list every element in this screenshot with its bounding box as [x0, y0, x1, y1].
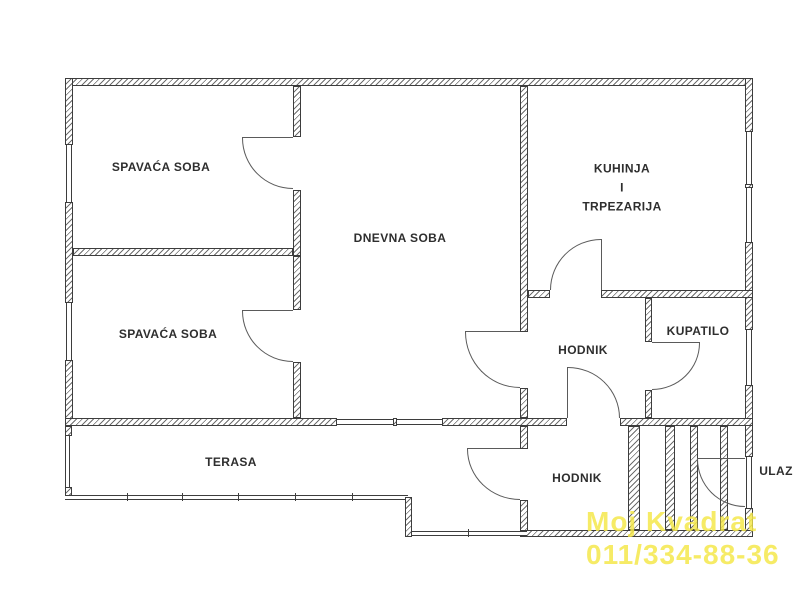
wall-kitchen-bottom: [528, 290, 550, 298]
room-label-entrance: ULAZ: [759, 464, 793, 478]
wall-left: [65, 78, 73, 145]
window-living-room: [337, 419, 442, 425]
railing-tick: [295, 493, 296, 501]
door-arc-hall: [568, 367, 620, 418]
window-bedroom2: [66, 303, 72, 360]
room-label-living-room: DNEVNA SOBA: [354, 231, 447, 245]
terrace-railing-bottom: [65, 495, 408, 500]
wall-bathroom-divider: [645, 298, 652, 342]
wall-right: [745, 242, 753, 330]
wall-left: [65, 360, 73, 426]
wall-living-divider: [520, 388, 528, 418]
watermark-brand: Moj Kvadrat: [586, 506, 757, 538]
wall-left: [65, 202, 73, 303]
terrace-step-wall: [405, 497, 412, 537]
door-arc-terrace: [467, 449, 520, 500]
kitchen-label-line2: I: [557, 179, 687, 198]
railing-tick: [238, 493, 239, 501]
wall-bathroom-divider: [645, 390, 652, 418]
railing-tick: [468, 529, 469, 537]
wall-bedroom-divider: [293, 362, 301, 418]
window-bathroom: [746, 330, 752, 385]
terrace-post: [65, 426, 72, 436]
kitchen-label-line1: KUHINJA: [557, 160, 687, 179]
wall-bottom-main: [620, 418, 753, 426]
room-label-bathroom: KUPATILO: [667, 324, 730, 338]
floor-plan: SPAVAĆA SOBA SPAVAĆA SOBA DNEVNA SOBA KU…: [0, 0, 800, 591]
wall-top: [65, 78, 753, 86]
wall-bottom-main: [442, 418, 567, 426]
door-arc-living: [465, 332, 520, 388]
room-label-bedroom2: SPAVAĆA SOBA: [119, 327, 217, 341]
kitchen-label-line3: TRPEZARIJA: [557, 198, 687, 217]
entrance-door-opening: [746, 457, 752, 508]
wall-between-bedrooms: [73, 248, 293, 256]
terrace-railing-left: [65, 436, 70, 487]
wall-kitchen-bottom: [601, 290, 753, 298]
door-arc-bedroom2: [242, 311, 293, 362]
wall-bedroom-divider: [293, 86, 301, 137]
door-arc-bathroom: [652, 343, 700, 390]
room-label-hall-lower: HODNIK: [552, 471, 602, 485]
door-arc-bedroom1: [242, 138, 293, 189]
wall-right: [745, 78, 753, 132]
wall-living-divider: [520, 86, 528, 332]
window-mullion: [393, 418, 397, 426]
terrace-railing-lower: [412, 531, 527, 536]
window-mullion: [745, 184, 753, 188]
door-leaf-kitchen: [601, 239, 602, 290]
door-arc-entrance: [697, 459, 745, 507]
room-label-bedroom1: SPAVAĆA SOBA: [112, 160, 210, 174]
railing-tick: [127, 493, 128, 501]
window-bedroom1: [66, 145, 72, 202]
door-arc-kitchen: [550, 239, 601, 290]
railing-tick: [182, 493, 183, 501]
railing-tick: [352, 493, 353, 501]
room-label-kitchen: KUHINJA I TRPEZARIJA: [557, 160, 687, 217]
room-label-terrace: TERASA: [205, 455, 257, 469]
wall-terrace-divider: [520, 426, 528, 449]
wall-bedroom-divider: [293, 256, 301, 310]
watermark-phone: 011/334-88-36: [586, 539, 780, 571]
room-label-hall-upper: HODNIK: [558, 343, 608, 357]
wall-bottom-main: [65, 418, 337, 426]
wall-bedroom-divider: [293, 190, 301, 256]
